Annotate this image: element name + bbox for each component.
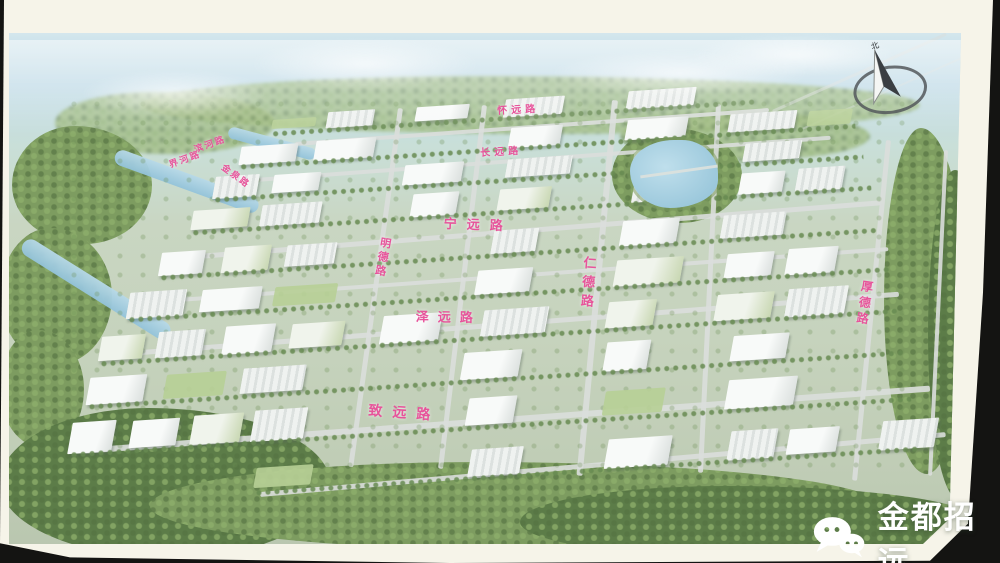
building <box>465 395 518 426</box>
photo-background: 北 怀远路长远路宁远路泽远路致远路仁德路明德路厚德路滨河路界河路金泉路 <box>0 0 1000 563</box>
cloud <box>250 38 480 90</box>
aerial-scene: 北 怀远路长远路宁远路泽远路致远路仁德路明德路厚德路滨河路界河路金泉路 <box>9 33 961 544</box>
building <box>786 426 840 455</box>
display-board: 北 怀远路长远路宁远路泽远路致远路仁德路明德路厚德路滨河路界河路金泉路 <box>0 0 1000 563</box>
cloud <box>80 70 270 118</box>
building <box>98 334 146 361</box>
watermark-text: 金都招远 <box>878 492 1000 563</box>
road-label-zeyuan: 泽远路 <box>416 310 482 324</box>
lawn-patch <box>253 464 314 488</box>
wechat-icon <box>812 514 866 560</box>
building <box>128 418 180 449</box>
lawn-patch <box>602 387 666 415</box>
watermark: 金都招远 <box>812 492 1000 563</box>
rendering-area: 北 怀远路长远路宁远路泽远路致远路仁德路明德路厚德路滨河路界河路金泉路 <box>9 33 961 544</box>
compass: 北 <box>841 39 934 124</box>
road-label-ningyuan: 宁远路 <box>444 217 513 232</box>
